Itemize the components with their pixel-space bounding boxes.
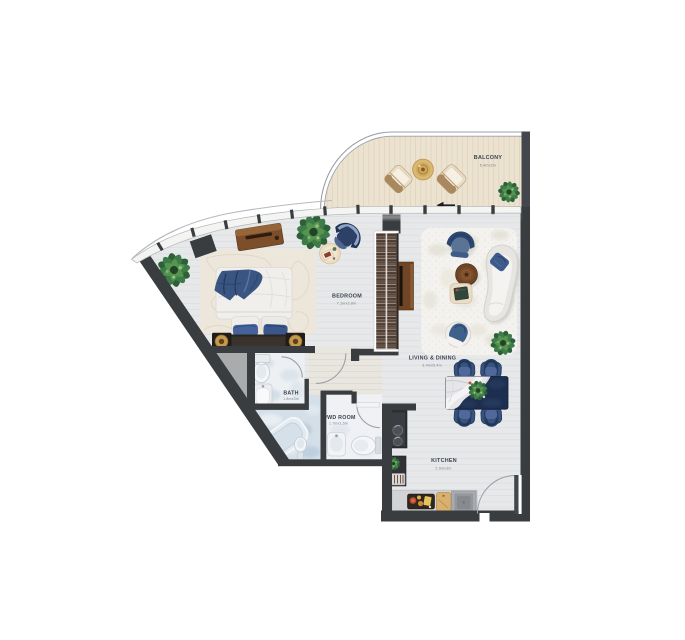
svg-text:1.7mx1.5m: 1.7mx1.5m [329,422,348,426]
svg-text:5.4mx2m: 5.4mx2m [480,164,497,168]
svg-text:7.1mx3.8m: 7.1mx3.8m [337,302,357,306]
svg-text:BATH: BATH [283,390,298,396]
svg-text:BEDROOM: BEDROOM [332,294,362,300]
svg-text:1.8mx3m: 1.8mx3m [283,397,299,401]
svg-text:3.4mx5.4m: 3.4mx5.4m [422,363,442,367]
svg-text:KITCHEN: KITCHEN [431,458,457,464]
svg-text:BALCONY: BALCONY [474,155,503,161]
svg-text:LIVING & DINING: LIVING & DINING [409,355,456,361]
svg-text:PWD ROOM: PWD ROOM [323,415,356,421]
svg-text:2.9mx3m: 2.9mx3m [435,467,451,471]
